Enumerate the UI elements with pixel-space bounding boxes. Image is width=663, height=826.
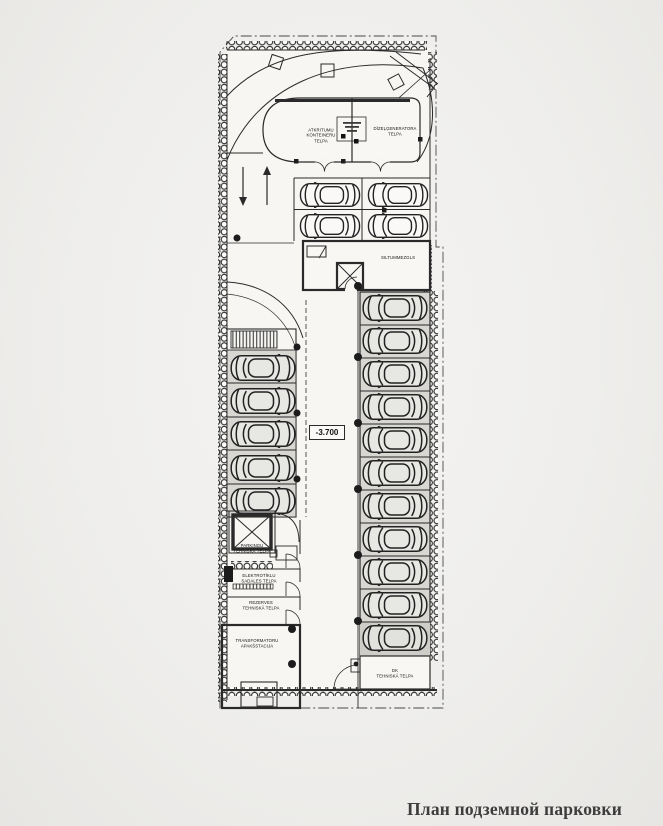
parked-car [368,182,427,207]
parked-car [231,454,295,481]
parked-car [363,525,427,552]
parked-car [363,426,427,453]
parked-car [363,459,427,486]
panel-box-icon [224,566,233,582]
parked-car [300,213,359,238]
level-mark: -3.700 [309,425,345,440]
switchgear-row [233,584,273,589]
parked-car [363,558,427,585]
parked-car [363,591,427,618]
parked-car [363,624,427,651]
parked-car [368,213,427,238]
parked-car [231,387,295,414]
stairs-hatch [231,331,277,348]
parked-car [363,294,427,321]
right-parking-column [360,292,430,656]
parked-car [363,492,427,519]
page-caption: План подземной парковки [407,799,622,820]
parked-car [231,354,295,381]
heat-unit-room [303,241,430,292]
left-parking-column [227,329,296,517]
bottom-right-tech-room [351,656,430,689]
floor-plan-svg [0,0,663,826]
parked-car [231,420,295,447]
scanned-floor-plan-page: ATKRITUMU KONTEINERU TELPA DĪZEĻĢENERATO… [0,0,663,826]
parked-car [300,182,359,207]
parked-car [363,327,427,354]
parked-car [363,393,427,420]
parked-car [363,360,427,387]
